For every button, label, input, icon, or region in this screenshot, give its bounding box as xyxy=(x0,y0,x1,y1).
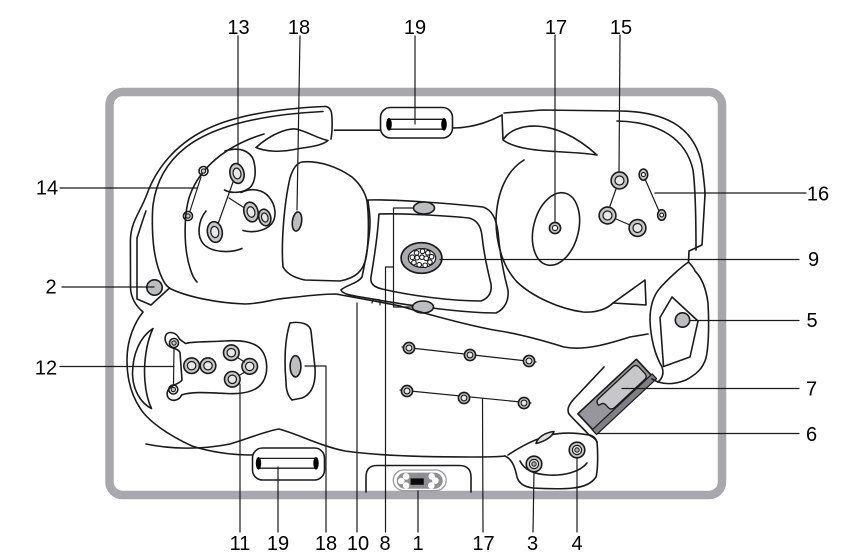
svg-text:11: 11 xyxy=(230,533,251,555)
svg-text:12: 12 xyxy=(35,358,57,380)
svg-text:4: 4 xyxy=(571,533,582,555)
svg-text:1: 1 xyxy=(412,533,423,555)
svg-text:6: 6 xyxy=(806,424,817,446)
svg-text:18: 18 xyxy=(315,533,337,555)
svg-text:16: 16 xyxy=(807,184,829,206)
svg-text:17: 17 xyxy=(472,533,494,555)
svg-text:9: 9 xyxy=(808,249,819,271)
svg-text:19: 19 xyxy=(404,17,426,39)
svg-text:3: 3 xyxy=(527,533,538,555)
svg-text:8: 8 xyxy=(379,533,390,555)
svg-text:7: 7 xyxy=(806,379,817,401)
svg-text:17: 17 xyxy=(545,17,567,39)
svg-text:19: 19 xyxy=(267,533,289,555)
svg-text:13: 13 xyxy=(227,17,249,39)
svg-text:5: 5 xyxy=(806,310,817,332)
svg-text:14: 14 xyxy=(36,178,58,200)
svg-text:2: 2 xyxy=(45,277,56,299)
svg-text:10: 10 xyxy=(347,533,369,555)
svg-text:15: 15 xyxy=(610,17,632,39)
svg-text:18: 18 xyxy=(288,17,310,39)
